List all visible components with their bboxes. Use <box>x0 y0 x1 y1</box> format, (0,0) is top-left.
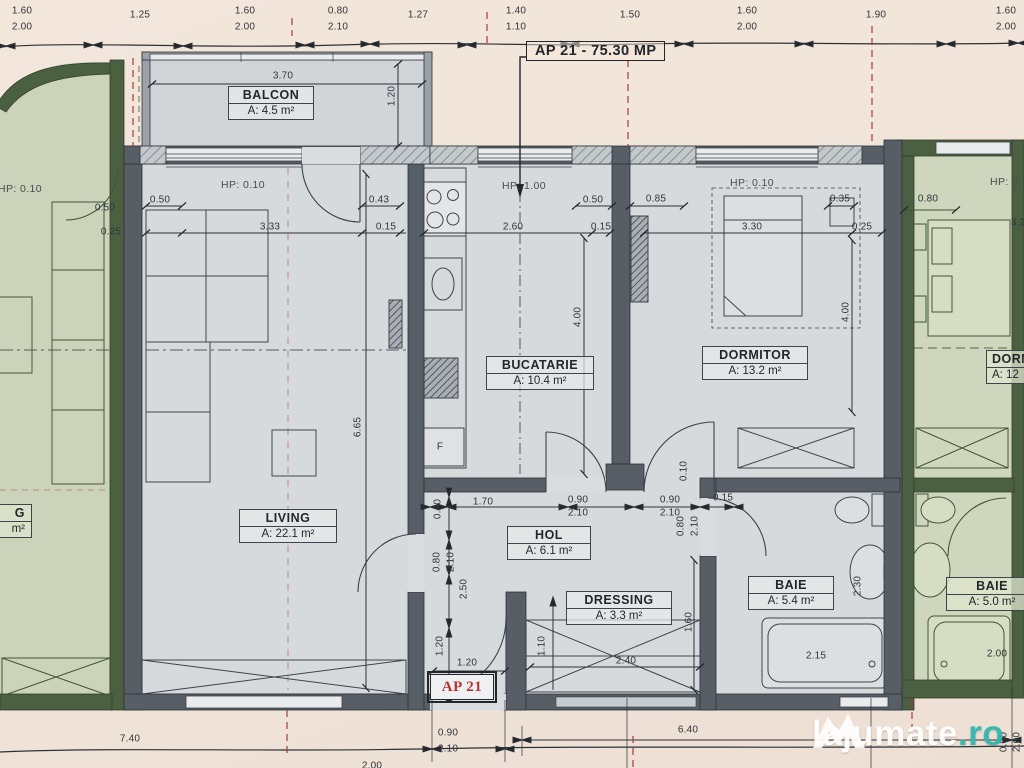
floorplan-drawing <box>0 0 1024 768</box>
floorplan-canvas: AP 21 - 75.30 MP BALCON A: 4.5 m² BUCATA… <box>0 0 1024 768</box>
